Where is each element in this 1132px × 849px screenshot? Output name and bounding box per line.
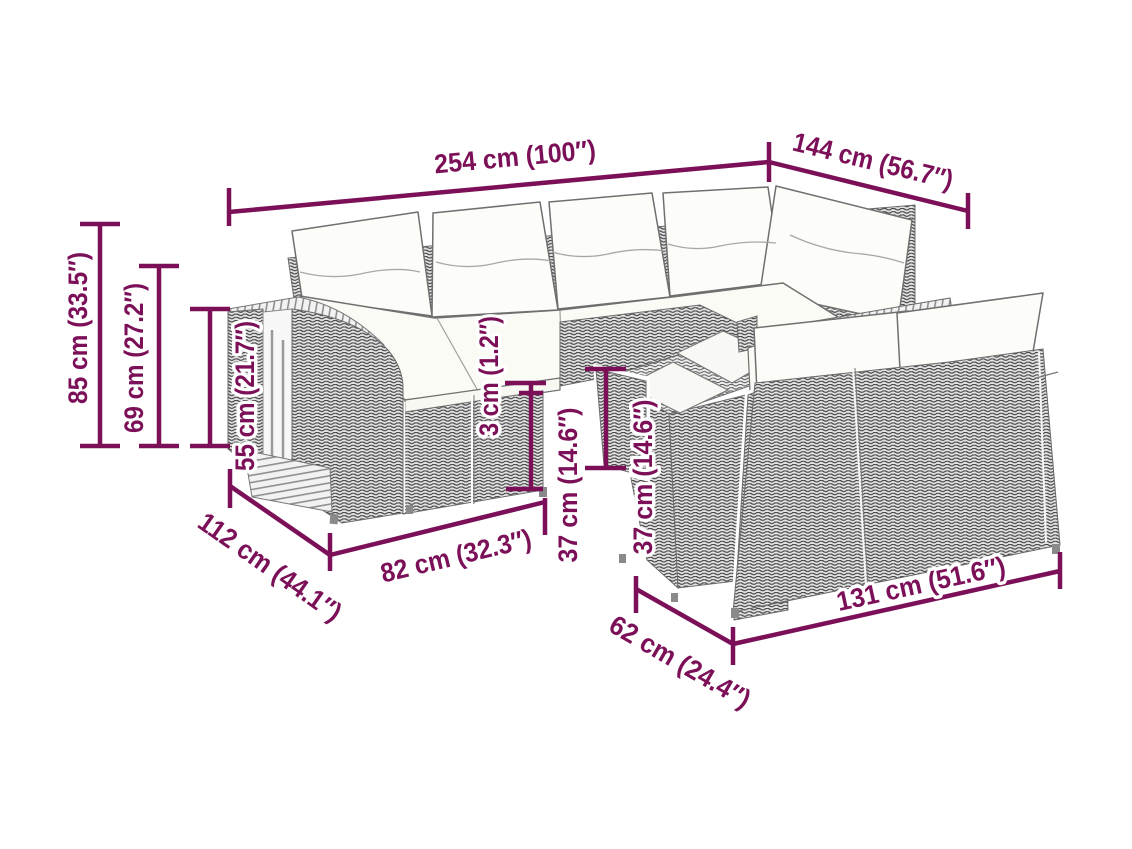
- svg-text:3 cm (1.2″): 3 cm (1.2″): [474, 316, 504, 436]
- svg-text:37 cm (14.6″): 37 cm (14.6″): [628, 400, 658, 555]
- svg-text:37 cm (14.6″): 37 cm (14.6″): [553, 408, 583, 563]
- svg-text:85 cm (33.5″): 85 cm (33.5″): [63, 252, 93, 404]
- svg-text:69 cm (27.2″): 69 cm (27.2″): [119, 283, 149, 433]
- svg-text:55 cm (21.7″): 55 cm (21.7″): [230, 321, 260, 471]
